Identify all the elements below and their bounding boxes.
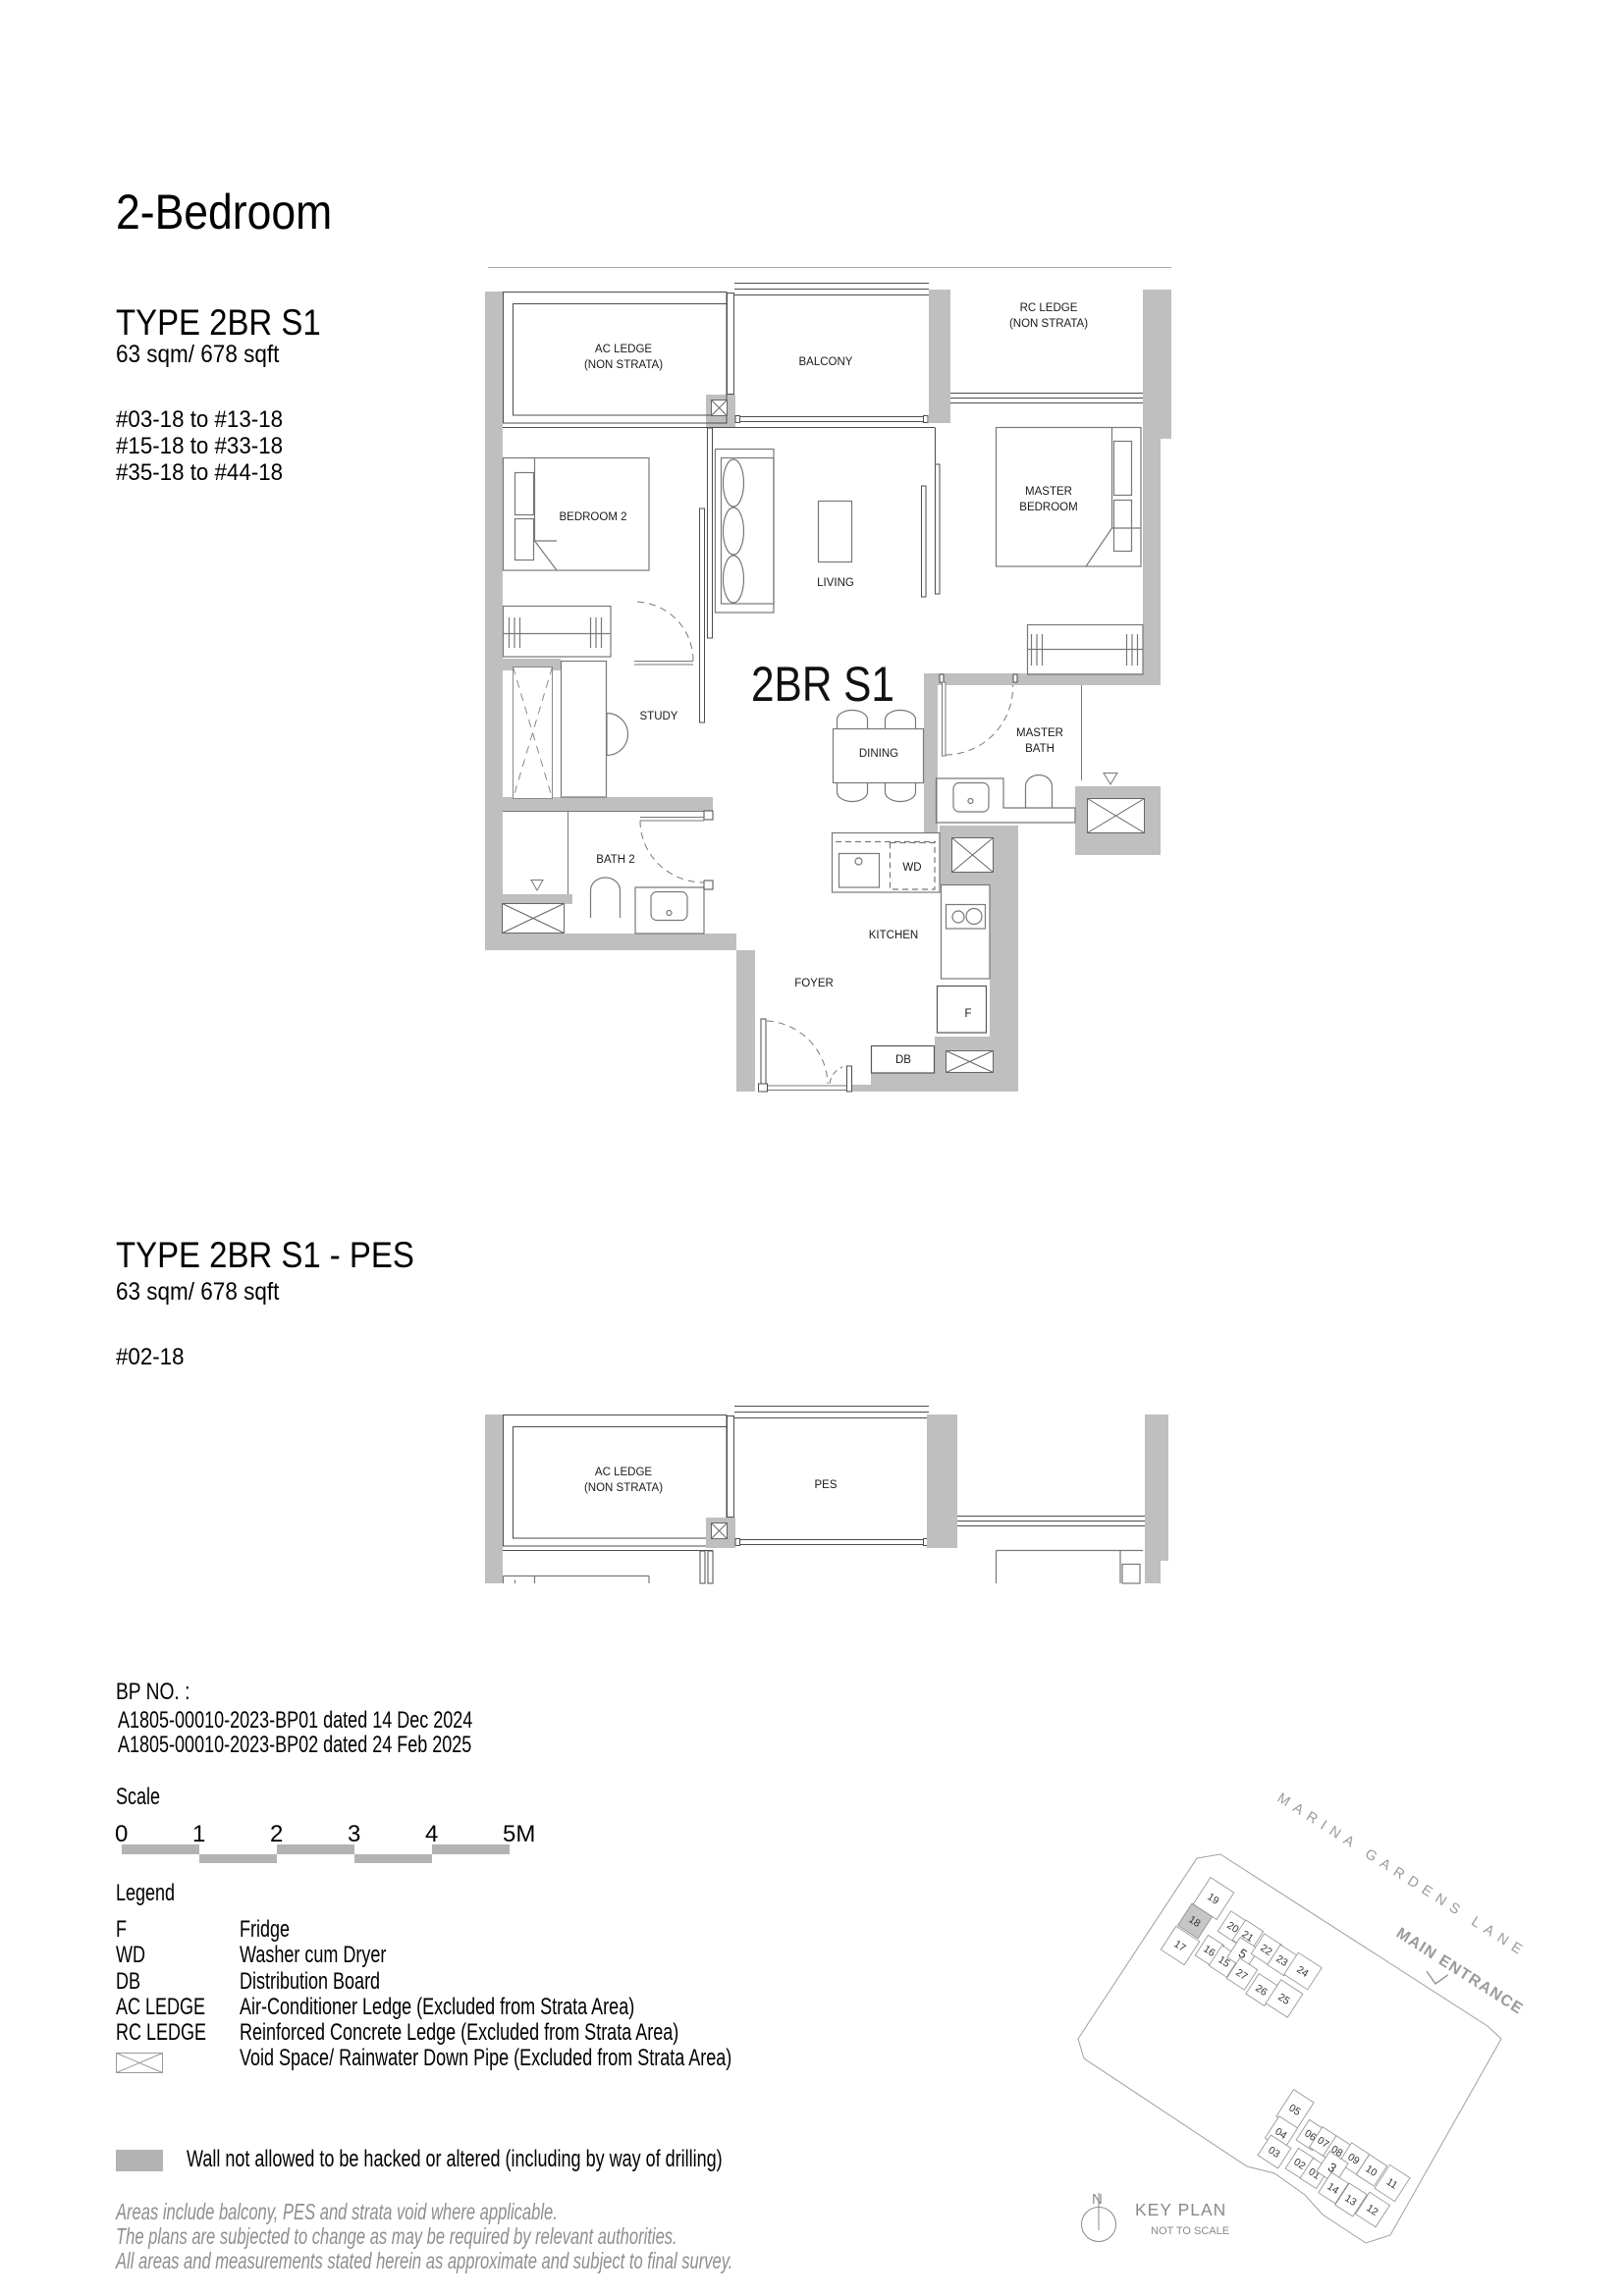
svg-text:BATH: BATH (1025, 743, 1055, 755)
svg-text:FOYER: FOYER (794, 978, 834, 989)
svg-text:(NON STRATA): (NON STRATA) (584, 359, 663, 371)
svg-text:DB: DB (895, 1054, 911, 1066)
svg-text:MASTER: MASTER (1025, 486, 1072, 498)
svg-text:LIVING: LIVING (817, 577, 854, 589)
svg-text:BEDROOM: BEDROOM (1019, 502, 1077, 513)
svg-text:KITCHEN: KITCHEN (869, 930, 918, 941)
svg-text:PES: PES (814, 1479, 837, 1491)
svg-text:STUDY: STUDY (640, 711, 678, 722)
svg-text:BALCONY: BALCONY (799, 356, 853, 368)
svg-text:F: F (964, 1008, 971, 1020)
svg-text:WD: WD (902, 862, 921, 874)
svg-text:2BR S1: 2BR S1 (751, 657, 894, 712)
svg-text:(NON STRATA): (NON STRATA) (1009, 318, 1088, 330)
svg-text:N: N (1092, 2191, 1103, 2208)
svg-text:AC LEDGE: AC LEDGE (595, 344, 652, 355)
svg-text:(NON STRATA): (NON STRATA) (584, 1482, 663, 1494)
svg-text:KEY PLAN: KEY PLAN (1135, 2200, 1226, 2219)
svg-text:BATH 2: BATH 2 (596, 854, 634, 866)
svg-text:RC LEDGE: RC LEDGE (1020, 302, 1078, 314)
svg-text:BEDROOM 2: BEDROOM 2 (559, 511, 626, 523)
svg-text:DINING: DINING (859, 748, 898, 760)
svg-text:NOT TO SCALE: NOT TO SCALE (1151, 2225, 1229, 2237)
svg-text:MASTER: MASTER (1016, 727, 1063, 739)
svg-text:AC LEDGE: AC LEDGE (595, 1467, 652, 1478)
